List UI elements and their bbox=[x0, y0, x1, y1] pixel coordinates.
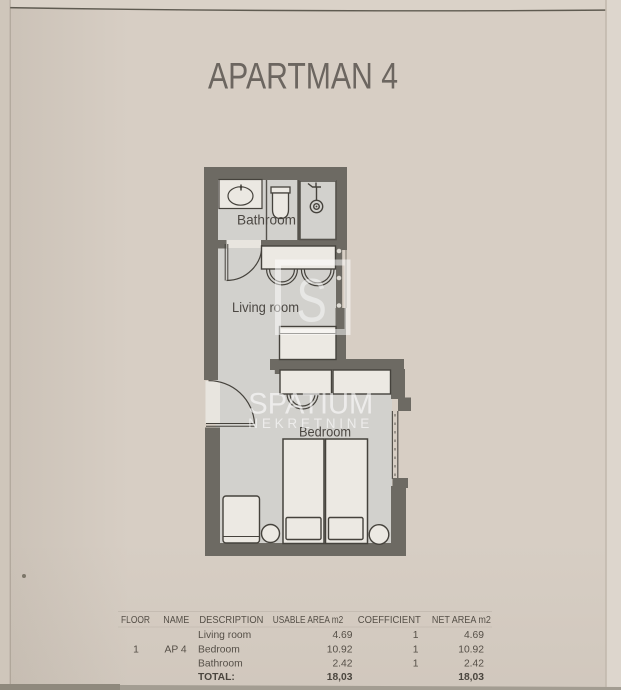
svg-text:10.92: 10.92 bbox=[458, 645, 484, 656]
svg-text:Living room: Living room bbox=[232, 299, 299, 315]
svg-text:1: 1 bbox=[413, 630, 419, 641]
svg-text:1: 1 bbox=[133, 645, 139, 656]
svg-text:NEKRETNINE: NEKRETNINE bbox=[248, 416, 373, 431]
svg-text:AP 4: AP 4 bbox=[165, 645, 187, 656]
svg-text:NAME: NAME bbox=[163, 615, 189, 626]
svg-text:Bathroom: Bathroom bbox=[198, 659, 243, 670]
svg-text:Living room: Living room bbox=[198, 630, 251, 641]
svg-text:NET AREA m2: NET AREA m2 bbox=[432, 615, 491, 626]
svg-text:18,03: 18,03 bbox=[458, 672, 484, 683]
svg-text:FLOOR: FLOOR bbox=[121, 615, 150, 626]
svg-text:1: 1 bbox=[413, 659, 419, 670]
svg-text:COEFFICIENT: COEFFICIENT bbox=[358, 615, 422, 626]
svg-text:Bathroom: Bathroom bbox=[237, 212, 296, 228]
svg-text:1: 1 bbox=[413, 645, 419, 656]
svg-text:APARTMAN 4: APARTMAN 4 bbox=[208, 55, 398, 97]
svg-text:4.69: 4.69 bbox=[464, 630, 484, 641]
svg-text:2.42: 2.42 bbox=[332, 659, 352, 670]
svg-text:TOTAL:: TOTAL: bbox=[198, 672, 235, 683]
svg-text:Bedroom: Bedroom bbox=[198, 645, 240, 656]
svg-text:S: S bbox=[296, 267, 327, 335]
svg-text:DESCRIPTION: DESCRIPTION bbox=[199, 615, 263, 626]
svg-text:18,03: 18,03 bbox=[327, 672, 353, 683]
svg-text:2.42: 2.42 bbox=[464, 659, 484, 670]
svg-text:USABLE AREA m2: USABLE AREA m2 bbox=[273, 615, 344, 626]
svg-text:10.92: 10.92 bbox=[327, 645, 353, 656]
svg-text:4.69: 4.69 bbox=[332, 630, 352, 641]
